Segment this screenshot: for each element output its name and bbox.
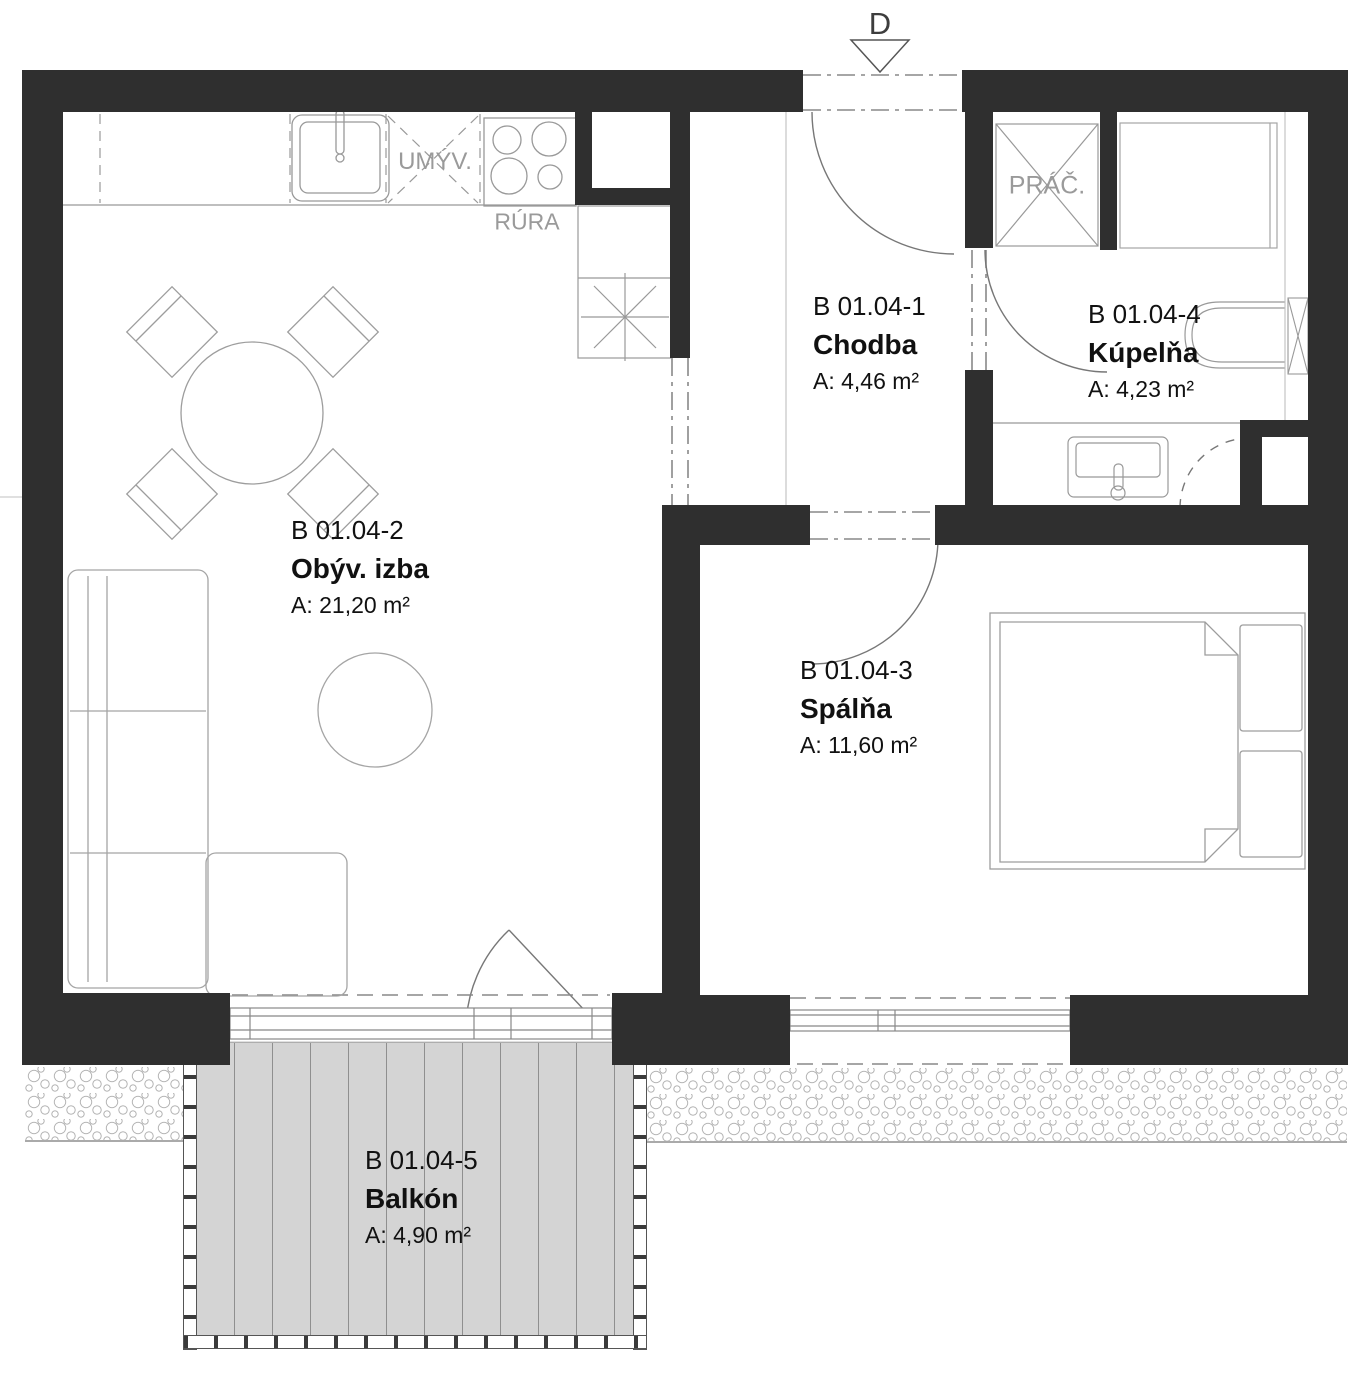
stove: [484, 118, 576, 206]
room-name: Spálňa: [800, 689, 917, 729]
wall-niche-bottom: [575, 188, 690, 205]
shower: [1120, 123, 1277, 248]
room-name: Obýv. izba: [291, 549, 429, 589]
burner-icon: [493, 126, 521, 154]
dining-set: [127, 287, 379, 540]
room-id: B 01.04-5: [365, 1142, 478, 1179]
wall-top-right: [962, 70, 1348, 112]
wall-bedroom-bottom-right: [1070, 995, 1348, 1065]
oven-label: RÚRA: [494, 209, 559, 236]
room-area: A: 4,23 m²: [1088, 373, 1201, 406]
entrance-door-swing: [812, 112, 954, 254]
room-area: A: 11,60 m²: [800, 729, 917, 762]
room-id: B 01.04-4: [1088, 296, 1201, 333]
floor-plan: D B 01.04-1 Chodba A: 4,46 m² B 01.04-2 …: [0, 0, 1370, 1381]
kitchen-tall-cabinet: [578, 206, 672, 361]
dining-table: [181, 342, 323, 484]
entrance-arrow-icon: [851, 40, 909, 72]
reference-lines: [0, 112, 1285, 1042]
wall-bedroom-bottom-left: [663, 995, 790, 1065]
pillow: [1240, 625, 1302, 731]
room-label-chodba: B 01.04-1 Chodba A: 4,46 m²: [813, 288, 926, 397]
room-name: Kúpelňa: [1088, 333, 1201, 373]
wall-hall-bath-upper: [965, 112, 993, 248]
room-id: B 01.04-3: [800, 652, 917, 689]
room-label-kupelna: B 01.04-4 Kúpelňa A: 4,23 m²: [1088, 296, 1201, 405]
wall-right: [1308, 70, 1348, 1065]
room-id: B 01.04-2: [291, 512, 429, 549]
room-area: A: 4,90 m²: [365, 1219, 478, 1252]
wall-niche-left: [575, 112, 592, 190]
wall-top-left: [22, 70, 803, 112]
chair: [127, 287, 218, 378]
wall-bath-bottom: [935, 505, 1348, 545]
room-label-spalna: B 01.04-3 Spálňa A: 11,60 m²: [800, 652, 917, 761]
wall-bottom-left: [22, 993, 230, 1065]
washer-label: PRÁČ.: [1009, 172, 1085, 201]
shaft-icon: [1288, 298, 1308, 374]
wall-washer-divider: [1100, 112, 1117, 250]
room-area: A: 4,46 m²: [813, 365, 926, 398]
dishwasher-label: UMÝV.: [398, 148, 472, 176]
kitchen-counter: [63, 114, 575, 205]
appliance-star-icon: [581, 273, 669, 361]
faucet-icon: [336, 110, 344, 154]
room-label-obyv-izba: B 01.04-2 Obýv. izba A: 21,20 m²: [291, 512, 429, 621]
kitchen-sink: [292, 110, 389, 201]
living-room-window: [230, 1008, 612, 1039]
mattress: [1000, 622, 1238, 862]
wall-hall-bedroom: [662, 505, 810, 545]
wall-bath-niche-top: [1240, 420, 1308, 437]
chair: [127, 449, 218, 540]
door-swings: [466, 112, 1250, 1030]
bedroom-door-swing: [812, 538, 938, 664]
room-id: B 01.04-1: [813, 288, 926, 325]
room-area: A: 21,20 m²: [291, 589, 429, 622]
coffee-table: [318, 653, 432, 767]
ottoman: [206, 853, 347, 996]
wall-living-bedroom: [662, 505, 700, 995]
wall-bath-niche-side: [1240, 437, 1262, 505]
entrance-door-label: D: [869, 6, 891, 42]
bed: [990, 613, 1305, 869]
sofa: [68, 570, 347, 996]
room-label-balkon: B 01.04-5 Balkón A: 4,90 m²: [365, 1142, 478, 1251]
bedroom-window: [790, 1010, 1070, 1031]
pillow: [1240, 751, 1302, 857]
chair: [288, 287, 379, 378]
wall-left: [22, 70, 63, 1065]
wall-hall-bath-lower: [965, 370, 993, 505]
room-name: Chodba: [813, 325, 926, 365]
wall-balcony-jamb: [612, 993, 663, 1065]
room-name: Balkón: [365, 1179, 478, 1219]
wall-kitchen-pier: [670, 112, 690, 358]
washbasin: [993, 423, 1240, 500]
